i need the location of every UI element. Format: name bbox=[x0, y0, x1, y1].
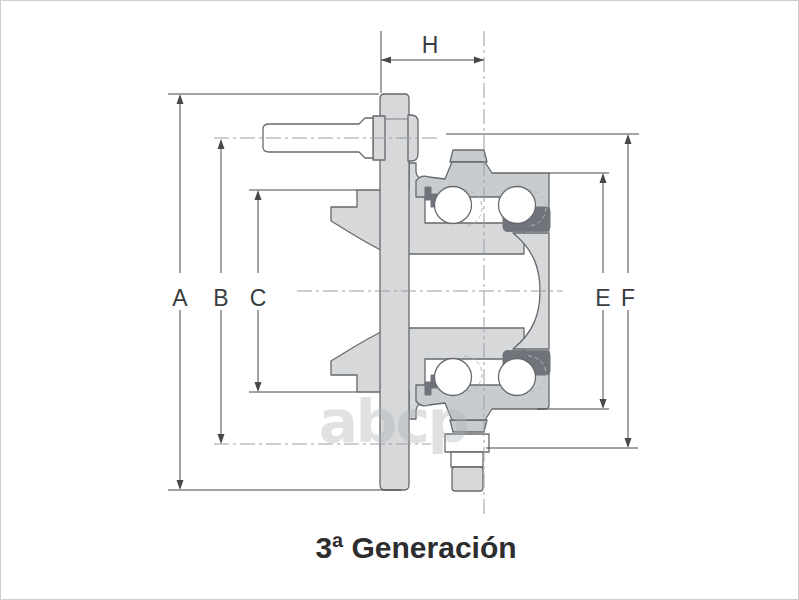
dim-label-a: A bbox=[172, 285, 188, 311]
diagram-canvas: A B C E F bbox=[0, 0, 799, 600]
dim-label-b: B bbox=[213, 285, 228, 311]
dim-label-c: C bbox=[250, 285, 267, 311]
bearing-ball-lower-right bbox=[499, 359, 536, 396]
outer-ring-upper-tab bbox=[450, 150, 487, 162]
dim-b: B bbox=[213, 139, 228, 444]
bearing-ball-upper-right bbox=[499, 187, 536, 224]
dim-label-e: E bbox=[595, 285, 610, 311]
bearing-ball-upper-left bbox=[435, 187, 472, 224]
hub-bearing-technical-drawing: A B C E F bbox=[1, 1, 799, 600]
watermark-logo: abcp bbox=[319, 388, 468, 456]
diagram-caption: 3ª Generación bbox=[315, 531, 516, 564]
dim-h: H bbox=[381, 31, 484, 93]
dim-label-f: F bbox=[621, 285, 635, 311]
dim-label-h: H bbox=[422, 32, 439, 58]
